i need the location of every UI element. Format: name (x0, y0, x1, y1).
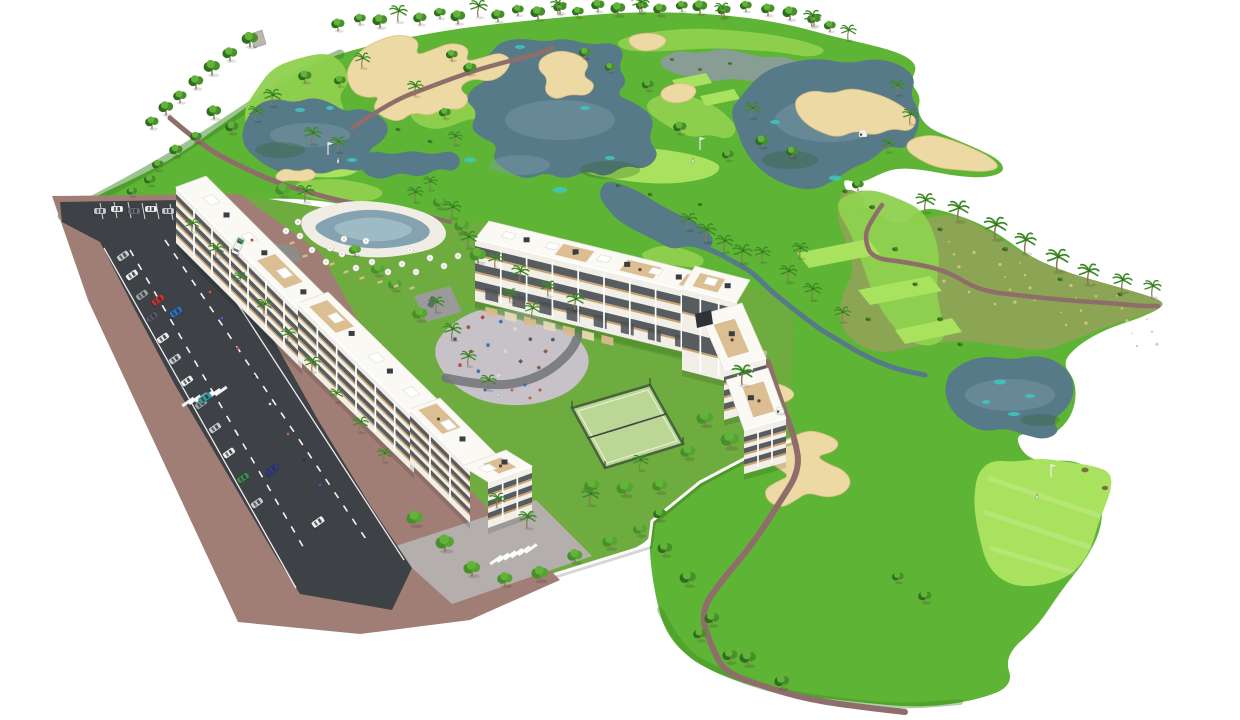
scrub-speckle (1019, 262, 1021, 264)
rooftop-ac-unit (729, 331, 735, 336)
car-body (145, 206, 157, 212)
dry-bush (1081, 468, 1088, 473)
play-equipment (458, 363, 461, 366)
terrace-furniture (731, 338, 734, 341)
shallow-water (326, 106, 334, 110)
car-body (94, 208, 106, 214)
tree (676, 1, 688, 14)
car-windshield (100, 209, 103, 213)
scrub-speckle (968, 291, 971, 294)
scrub-speckle (972, 251, 975, 254)
dry-bush (1102, 486, 1108, 490)
tree (512, 5, 524, 18)
rooftop-ac-unit (387, 369, 393, 374)
tree (372, 14, 387, 30)
shallow-water (347, 158, 357, 162)
terrace-furniture (499, 464, 502, 467)
person (484, 389, 487, 392)
scrub-speckle (994, 303, 997, 306)
rooftop-ac-unit (224, 212, 230, 217)
scrub-speckle (953, 253, 956, 256)
scrub-speckle (1084, 322, 1087, 325)
golf-ball (1045, 487, 1047, 489)
rooftop-ac-unit (676, 274, 682, 279)
scrub-speckle (1131, 333, 1133, 335)
rooftop-ac-unit (261, 250, 267, 255)
scrub-speckle (998, 263, 1001, 266)
person (209, 291, 212, 294)
tree (413, 12, 426, 26)
scrub-speckle (957, 265, 960, 268)
shallow-water (515, 45, 525, 49)
scrub-speckle (1028, 286, 1031, 289)
scrub-speckle (1136, 345, 1139, 348)
tree (491, 9, 504, 23)
tree (782, 6, 797, 22)
rooftop-ac-unit (748, 395, 754, 400)
tree (331, 18, 344, 32)
rooftop-ac-unit (460, 436, 466, 441)
tree (145, 116, 158, 130)
person (251, 239, 254, 242)
water-highlight (965, 379, 1055, 411)
shallow-water (553, 187, 567, 193)
rooftop-ac-unit (624, 262, 630, 267)
person (221, 317, 224, 320)
person (524, 384, 527, 387)
tree (242, 32, 258, 49)
shallow-water (464, 158, 476, 163)
scrub-speckle (1080, 309, 1083, 312)
person (497, 394, 500, 397)
car-body (111, 206, 123, 212)
tree (434, 8, 446, 21)
tree-reflection (255, 142, 305, 158)
scrub-speckle (1125, 319, 1128, 322)
play-equipment (486, 343, 489, 346)
tree (158, 101, 173, 117)
scrub-speckle (942, 280, 945, 283)
palm-tree (390, 6, 407, 25)
shallow-water (1008, 412, 1020, 416)
tree (450, 10, 465, 26)
shallow-water (1025, 394, 1035, 398)
terrace-furniture (437, 417, 440, 420)
tree (740, 1, 752, 14)
scrub-speckle (1060, 312, 1062, 314)
scrub-speckle (1121, 307, 1124, 310)
rooftop-ac-unit (573, 249, 579, 254)
tree (204, 60, 220, 77)
person (511, 389, 514, 392)
person (287, 433, 290, 436)
shallow-water (982, 400, 990, 404)
tree (530, 6, 545, 22)
person (539, 389, 542, 392)
play-equipment (513, 327, 516, 330)
car-rear-window (131, 209, 133, 213)
golfer (1036, 495, 1038, 499)
car-rear-window (165, 209, 167, 213)
tree (354, 14, 366, 27)
tree-reflection (580, 161, 640, 179)
car-rear-window (97, 209, 99, 213)
rooftop-ac-unit (349, 331, 355, 336)
scrub-speckle (1013, 301, 1016, 304)
car-body (162, 208, 174, 214)
tree (761, 3, 774, 17)
car-windshield (168, 209, 171, 213)
shallow-water (295, 108, 305, 112)
shallow-water (580, 106, 590, 110)
scrub-speckle (1065, 324, 1068, 327)
tree (591, 0, 604, 14)
water-highlight (505, 100, 615, 140)
rooftop-ac-unit (725, 283, 731, 288)
shallow-water (605, 156, 615, 160)
tree (173, 90, 186, 104)
tree (206, 105, 221, 121)
scrub-speckle (1155, 343, 1158, 346)
tree (222, 47, 237, 63)
terrace-furniture (757, 399, 760, 402)
person (237, 347, 240, 350)
person (253, 375, 256, 378)
scrub-speckle (1069, 284, 1072, 287)
scrub-speckle (1151, 330, 1154, 333)
golfer (692, 159, 694, 163)
golfer (337, 159, 339, 163)
scrub-speckle (1024, 274, 1027, 277)
car-rear-window (114, 207, 116, 211)
rooftop-ac-unit (502, 460, 508, 465)
scrub-speckle (1146, 318, 1148, 320)
car-windshield (134, 209, 137, 213)
person (529, 397, 532, 400)
palm-tree (470, 1, 487, 20)
person (303, 459, 306, 462)
scrub-speckle (948, 241, 950, 243)
tree-reflection (1020, 414, 1060, 426)
scrub-speckle (1095, 295, 1098, 298)
golfer-head (692, 158, 694, 160)
terrace-furniture (638, 268, 641, 271)
tree (824, 21, 836, 34)
rooftop-ac-unit (300, 289, 306, 294)
golfer-head (1036, 494, 1038, 496)
sand-bunker (276, 169, 316, 181)
scrub-speckle (1004, 276, 1006, 278)
rooftop-ac-unit (524, 237, 530, 242)
shallow-water (770, 120, 780, 124)
aerial-render-stage (0, 0, 1240, 720)
shallow-water (829, 176, 841, 181)
scrub-speckle (1116, 295, 1118, 297)
car-rear-window (148, 207, 150, 211)
water-highlight (490, 155, 550, 175)
person (319, 484, 322, 487)
tree (188, 75, 203, 91)
person (269, 403, 272, 406)
shallow-water (994, 380, 1006, 385)
golfer-head (337, 158, 339, 160)
car-windshield (117, 207, 120, 211)
car-windshield (151, 207, 154, 211)
car-body (128, 208, 140, 214)
scrub-speckle (1009, 288, 1012, 291)
scrub-speckle (1034, 299, 1036, 301)
golf-resort-aerial-render (0, 0, 1240, 720)
